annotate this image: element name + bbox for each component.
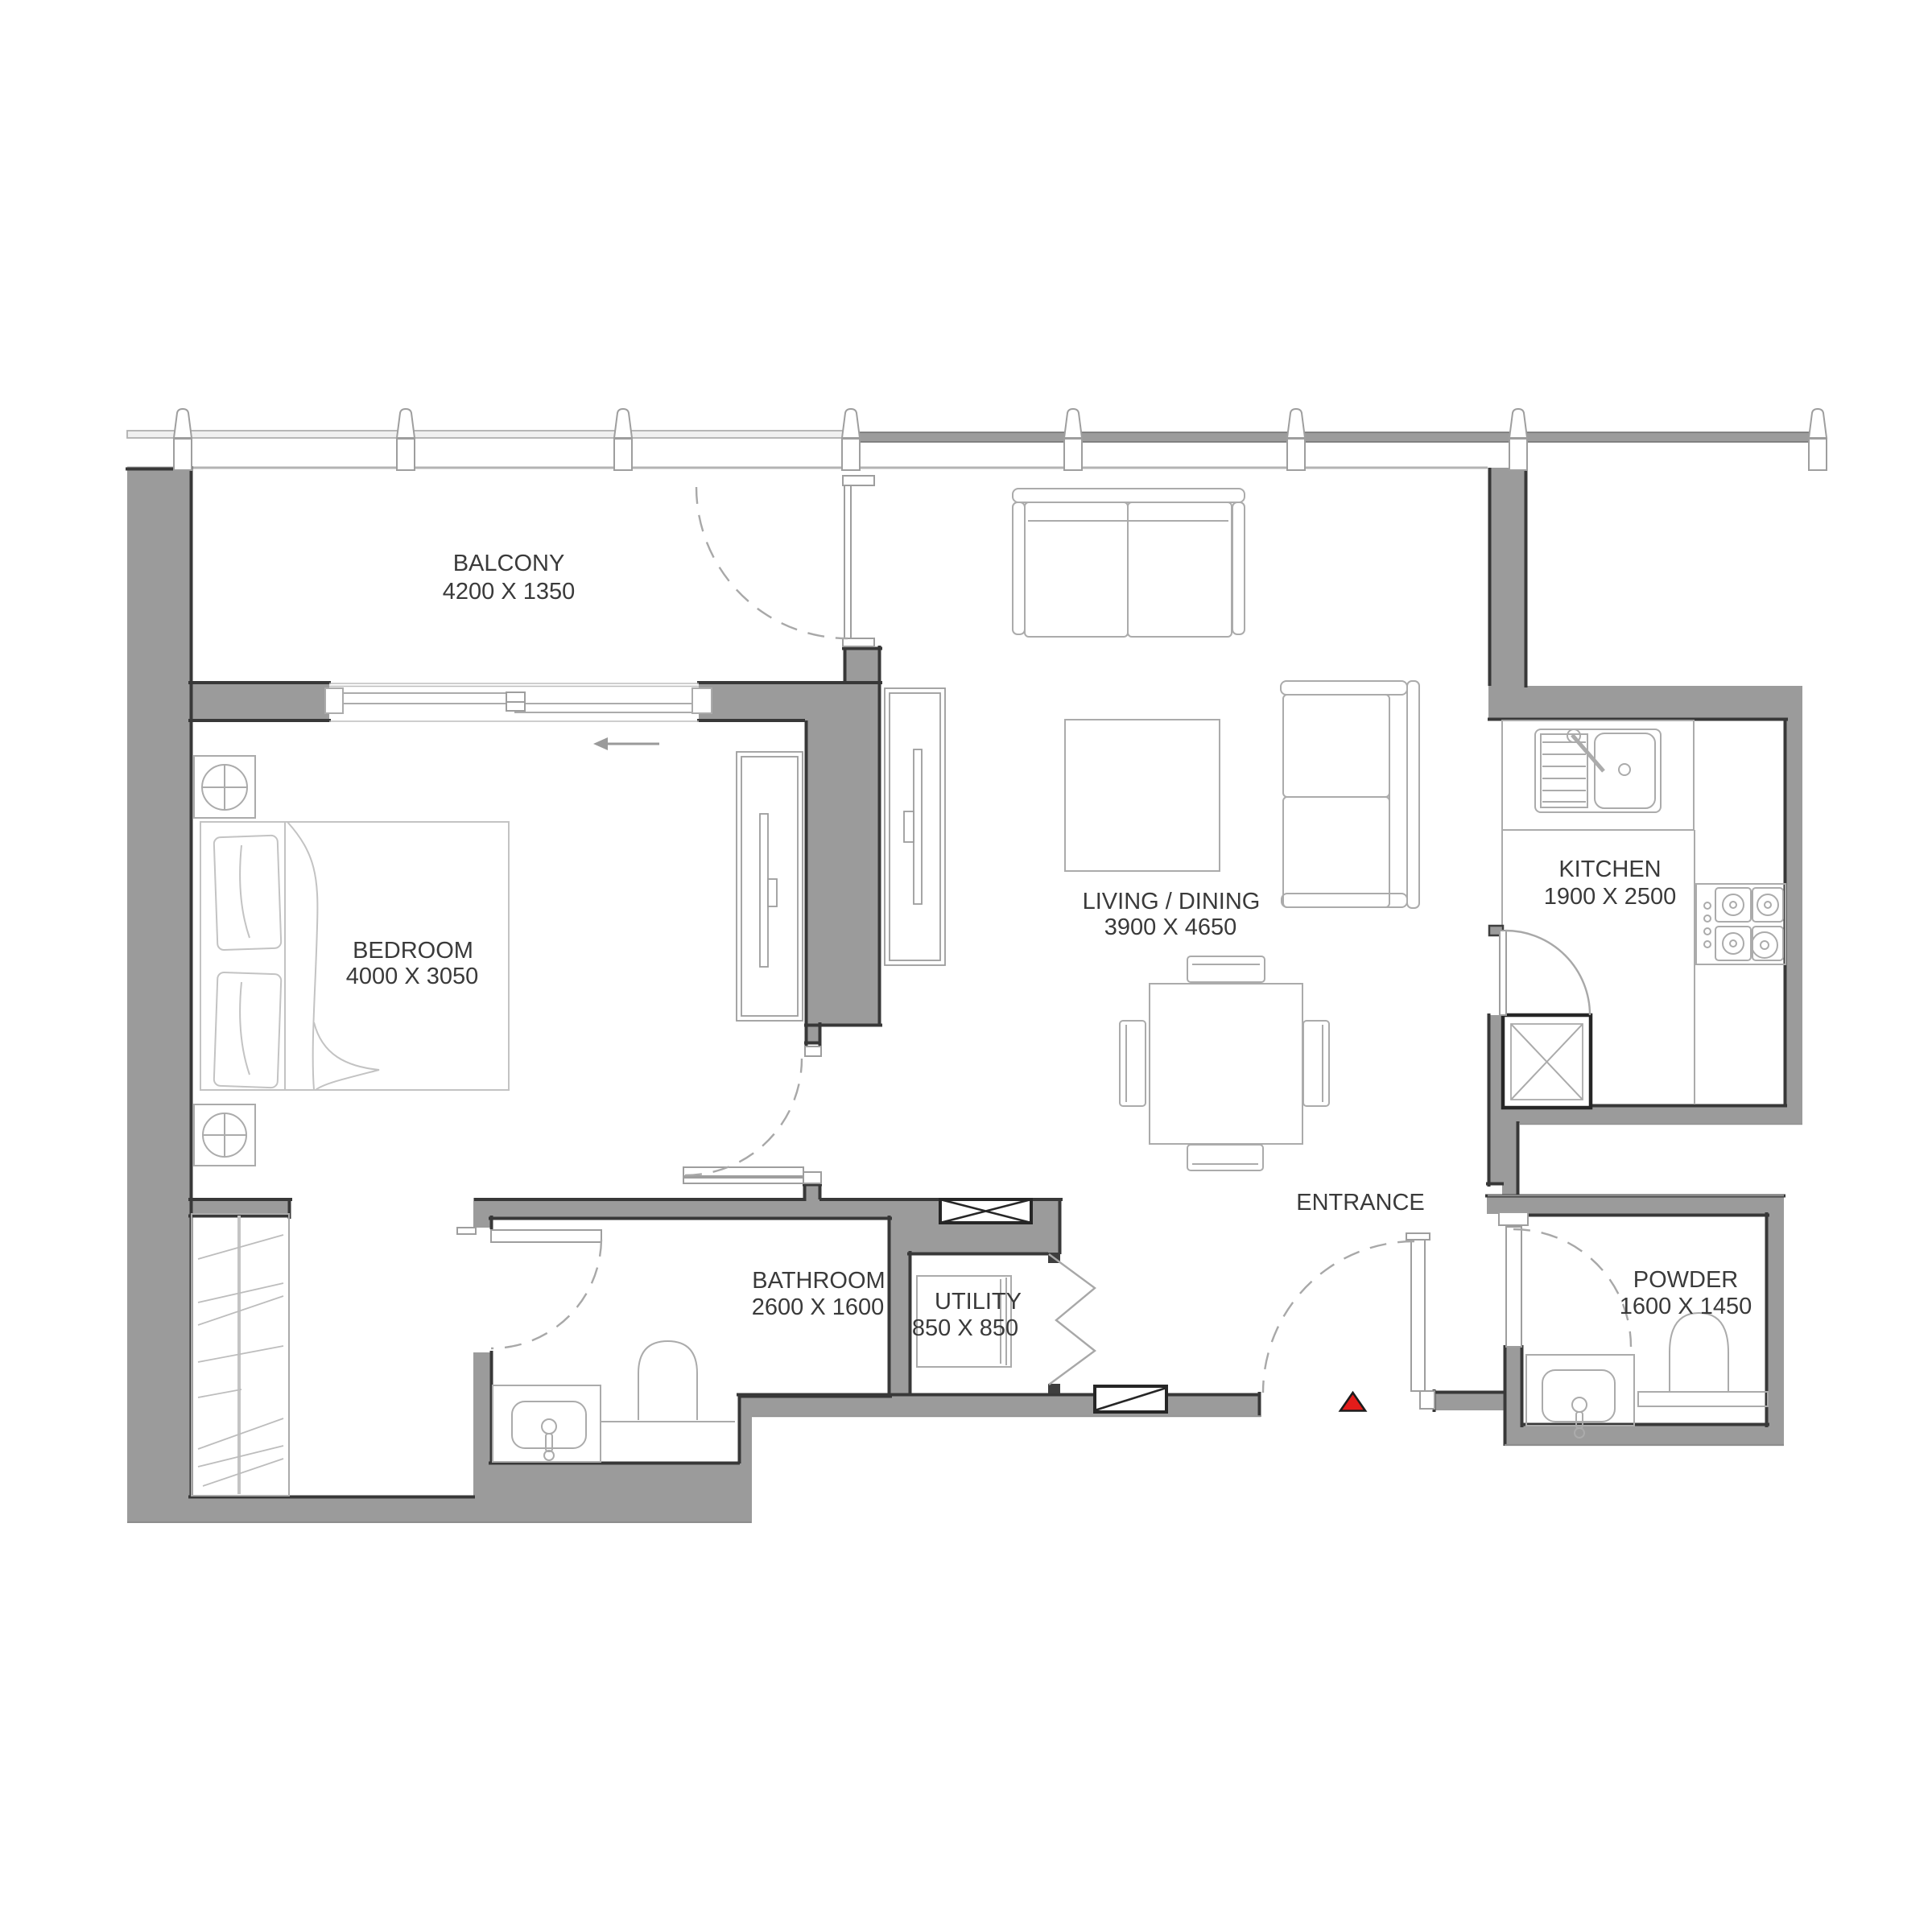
svg-text:UTILITY: UTILITY	[935, 1289, 1022, 1315]
svg-text:850 X 850: 850 X 850	[912, 1315, 1018, 1341]
svg-text:ENTRANCE: ENTRANCE	[1296, 1190, 1425, 1216]
svg-text:LIVING / DINING: LIVING / DINING	[1083, 889, 1261, 914]
svg-text:BATHROOM: BATHROOM	[752, 1268, 885, 1294]
svg-text:4000 X 3050: 4000 X 3050	[346, 964, 478, 989]
svg-text:3900 X 4650: 3900 X 4650	[1104, 914, 1236, 940]
svg-text:BALCONY: BALCONY	[453, 551, 565, 576]
svg-text:BEDROOM: BEDROOM	[353, 938, 473, 964]
svg-text:4200 X 1350: 4200 X 1350	[443, 579, 575, 605]
svg-text:1900 X 2500: 1900 X 2500	[1544, 884, 1676, 910]
svg-text:KITCHEN: KITCHEN	[1558, 857, 1661, 882]
svg-text:2600 X 1600: 2600 X 1600	[752, 1294, 884, 1320]
svg-text:1600 X 1450: 1600 X 1450	[1620, 1294, 1752, 1319]
svg-text:POWDER: POWDER	[1633, 1267, 1739, 1293]
